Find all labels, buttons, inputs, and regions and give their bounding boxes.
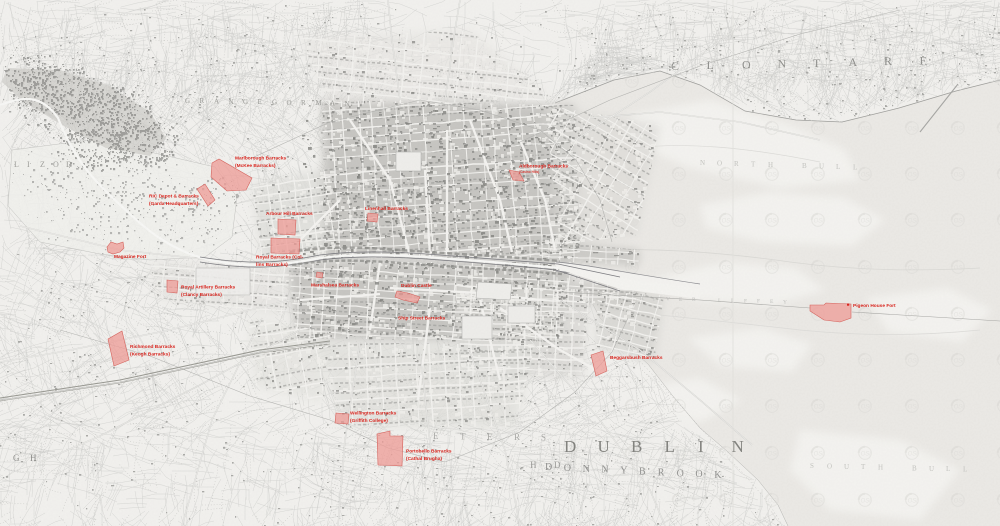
svg-text:Ship Street Barracks: Ship Street Barracks — [398, 316, 446, 322]
svg-text:F: F — [744, 298, 747, 304]
svg-text:R: R — [692, 297, 696, 303]
svg-text:Z: Z — [40, 160, 45, 169]
svg-text:R: R — [514, 432, 520, 442]
svg-text:N: N — [700, 159, 705, 167]
svg-text:D: D — [66, 160, 72, 169]
svg-text:U: U — [844, 463, 849, 471]
svg-text:T: T — [751, 161, 756, 169]
svg-text:L: L — [836, 163, 840, 171]
svg-text:G: G — [185, 97, 190, 105]
svg-text:E: E — [433, 431, 439, 441]
svg-text:L: L — [665, 437, 675, 456]
svg-text:O: O — [287, 99, 292, 107]
svg-text:Magazine Fort: Magazine Fort — [114, 254, 147, 260]
svg-text:O: O — [742, 57, 751, 71]
svg-text:Richmond Barracks: Richmond Barracks — [130, 344, 176, 350]
svg-text:C: C — [671, 59, 679, 73]
svg-text:K: K — [714, 470, 722, 481]
svg-text:A: A — [330, 100, 335, 108]
svg-text:E: E — [258, 98, 262, 106]
svg-text:A: A — [214, 98, 219, 106]
svg-text:N: N — [601, 465, 608, 476]
svg-text:Wellington Barracks: Wellington Barracks — [350, 411, 397, 417]
svg-text:R: R — [301, 99, 306, 107]
svg-text:T: T — [861, 463, 866, 471]
svg-text:O: O — [53, 160, 59, 169]
svg-text:E: E — [487, 432, 493, 442]
svg-text:B: B — [639, 467, 646, 478]
svg-text:G: G — [243, 98, 248, 106]
svg-text:Royal Barracks (Col-: Royal Barracks (Col- — [256, 255, 304, 261]
svg-text:B: B — [631, 437, 642, 456]
svg-text:O: O — [677, 468, 684, 479]
svg-text:U: U — [598, 437, 610, 456]
svg-text:Dublin Castle: Dublin Castle — [401, 283, 432, 289]
svg-text:R: R — [884, 54, 892, 68]
svg-text:Beggarsbush Barracks: Beggarsbush Barracks — [610, 355, 663, 361]
svg-text:O: O — [564, 463, 571, 474]
svg-text:N: N — [778, 57, 787, 71]
svg-text:L: L — [14, 160, 19, 169]
svg-text:(Griffith College): (Griffith College) — [350, 418, 388, 424]
svg-text:Marlborough Barracks: Marlborough Barracks — [235, 156, 287, 162]
svg-text:I: I — [698, 437, 704, 456]
svg-text:Linenhall Barracks: Linenhall Barracks — [365, 206, 408, 212]
svg-text:A: A — [849, 55, 858, 69]
svg-text:N: N — [229, 98, 234, 106]
svg-text:Marshalsea Barracks: Marshalsea Barracks — [311, 283, 359, 289]
svg-text:D: D — [545, 462, 552, 473]
svg-text:R: R — [734, 160, 739, 168]
svg-text:L: L — [963, 466, 967, 474]
svg-text:I: I — [27, 160, 30, 169]
svg-text:F: F — [920, 53, 927, 67]
svg-text:N: N — [732, 437, 744, 456]
svg-text:(Garda Headquarters): (Garda Headquarters) — [149, 201, 199, 207]
svg-text:N: N — [345, 100, 350, 108]
svg-text:L: L — [707, 58, 714, 72]
svg-text:U: U — [929, 465, 934, 473]
svg-text:G: G — [13, 453, 20, 463]
svg-text:O: O — [717, 160, 722, 168]
svg-text:H: H — [530, 460, 537, 470]
svg-text:L: L — [853, 164, 857, 172]
svg-text:R: R — [200, 97, 205, 105]
svg-text:F: F — [757, 299, 760, 305]
svg-text:RIC Depot & Barracks: RIC Depot & Barracks — [149, 194, 199, 200]
svg-text:Royal Artillery Barracks: Royal Artillery Barracks — [181, 285, 236, 291]
svg-text:Y: Y — [620, 466, 627, 477]
svg-text:D: D — [564, 437, 576, 456]
svg-text:Portobello Barracks: Portobello Barracks — [406, 449, 452, 455]
svg-text:Pigeon House Fort: Pigeon House Fort — [853, 303, 896, 309]
svg-text:I: I — [731, 298, 733, 304]
svg-text:R: R — [658, 467, 665, 478]
svg-text:L: L — [946, 465, 950, 473]
svg-text:Aldborough Barracks: Aldborough Barracks — [519, 164, 568, 170]
svg-text:H: H — [878, 464, 883, 472]
svg-text:V: V — [666, 297, 670, 303]
svg-text:D: D — [554, 460, 561, 470]
svg-text:H: H — [30, 453, 37, 463]
svg-text:S: S — [541, 433, 546, 443]
svg-text:(McKee Barracks): (McKee Barracks) — [235, 163, 276, 169]
svg-text:M: M — [316, 99, 323, 107]
svg-text:H: H — [768, 161, 773, 169]
svg-text:(Keogh Barracks): (Keogh Barracks) — [130, 351, 170, 357]
svg-text:lins Barracks): lins Barracks) — [256, 262, 288, 268]
svg-text:(Casino Hills): (Casino Hills) — [519, 170, 539, 174]
svg-text:B: B — [912, 464, 917, 472]
svg-text:O: O — [695, 469, 702, 480]
svg-text:(Clancy Barracks): (Clancy Barracks) — [181, 292, 222, 298]
svg-text:N: N — [583, 464, 590, 475]
svg-text:B: B — [802, 162, 807, 170]
svg-text:O: O — [827, 462, 832, 470]
svg-text:T: T — [460, 431, 466, 441]
svg-text:I: I — [653, 296, 655, 302]
svg-text:(Cathal Brugha): (Cathal Brugha) — [406, 456, 442, 462]
svg-text:T: T — [813, 56, 821, 70]
svg-text:U: U — [819, 163, 824, 171]
svg-text:R: R — [640, 296, 644, 302]
svg-text:Y: Y — [783, 299, 787, 305]
svg-text:G: G — [272, 99, 277, 107]
svg-text:S: S — [810, 462, 814, 470]
svg-text:Arbour Hill Barracks: Arbour Hill Barracks — [266, 211, 313, 217]
